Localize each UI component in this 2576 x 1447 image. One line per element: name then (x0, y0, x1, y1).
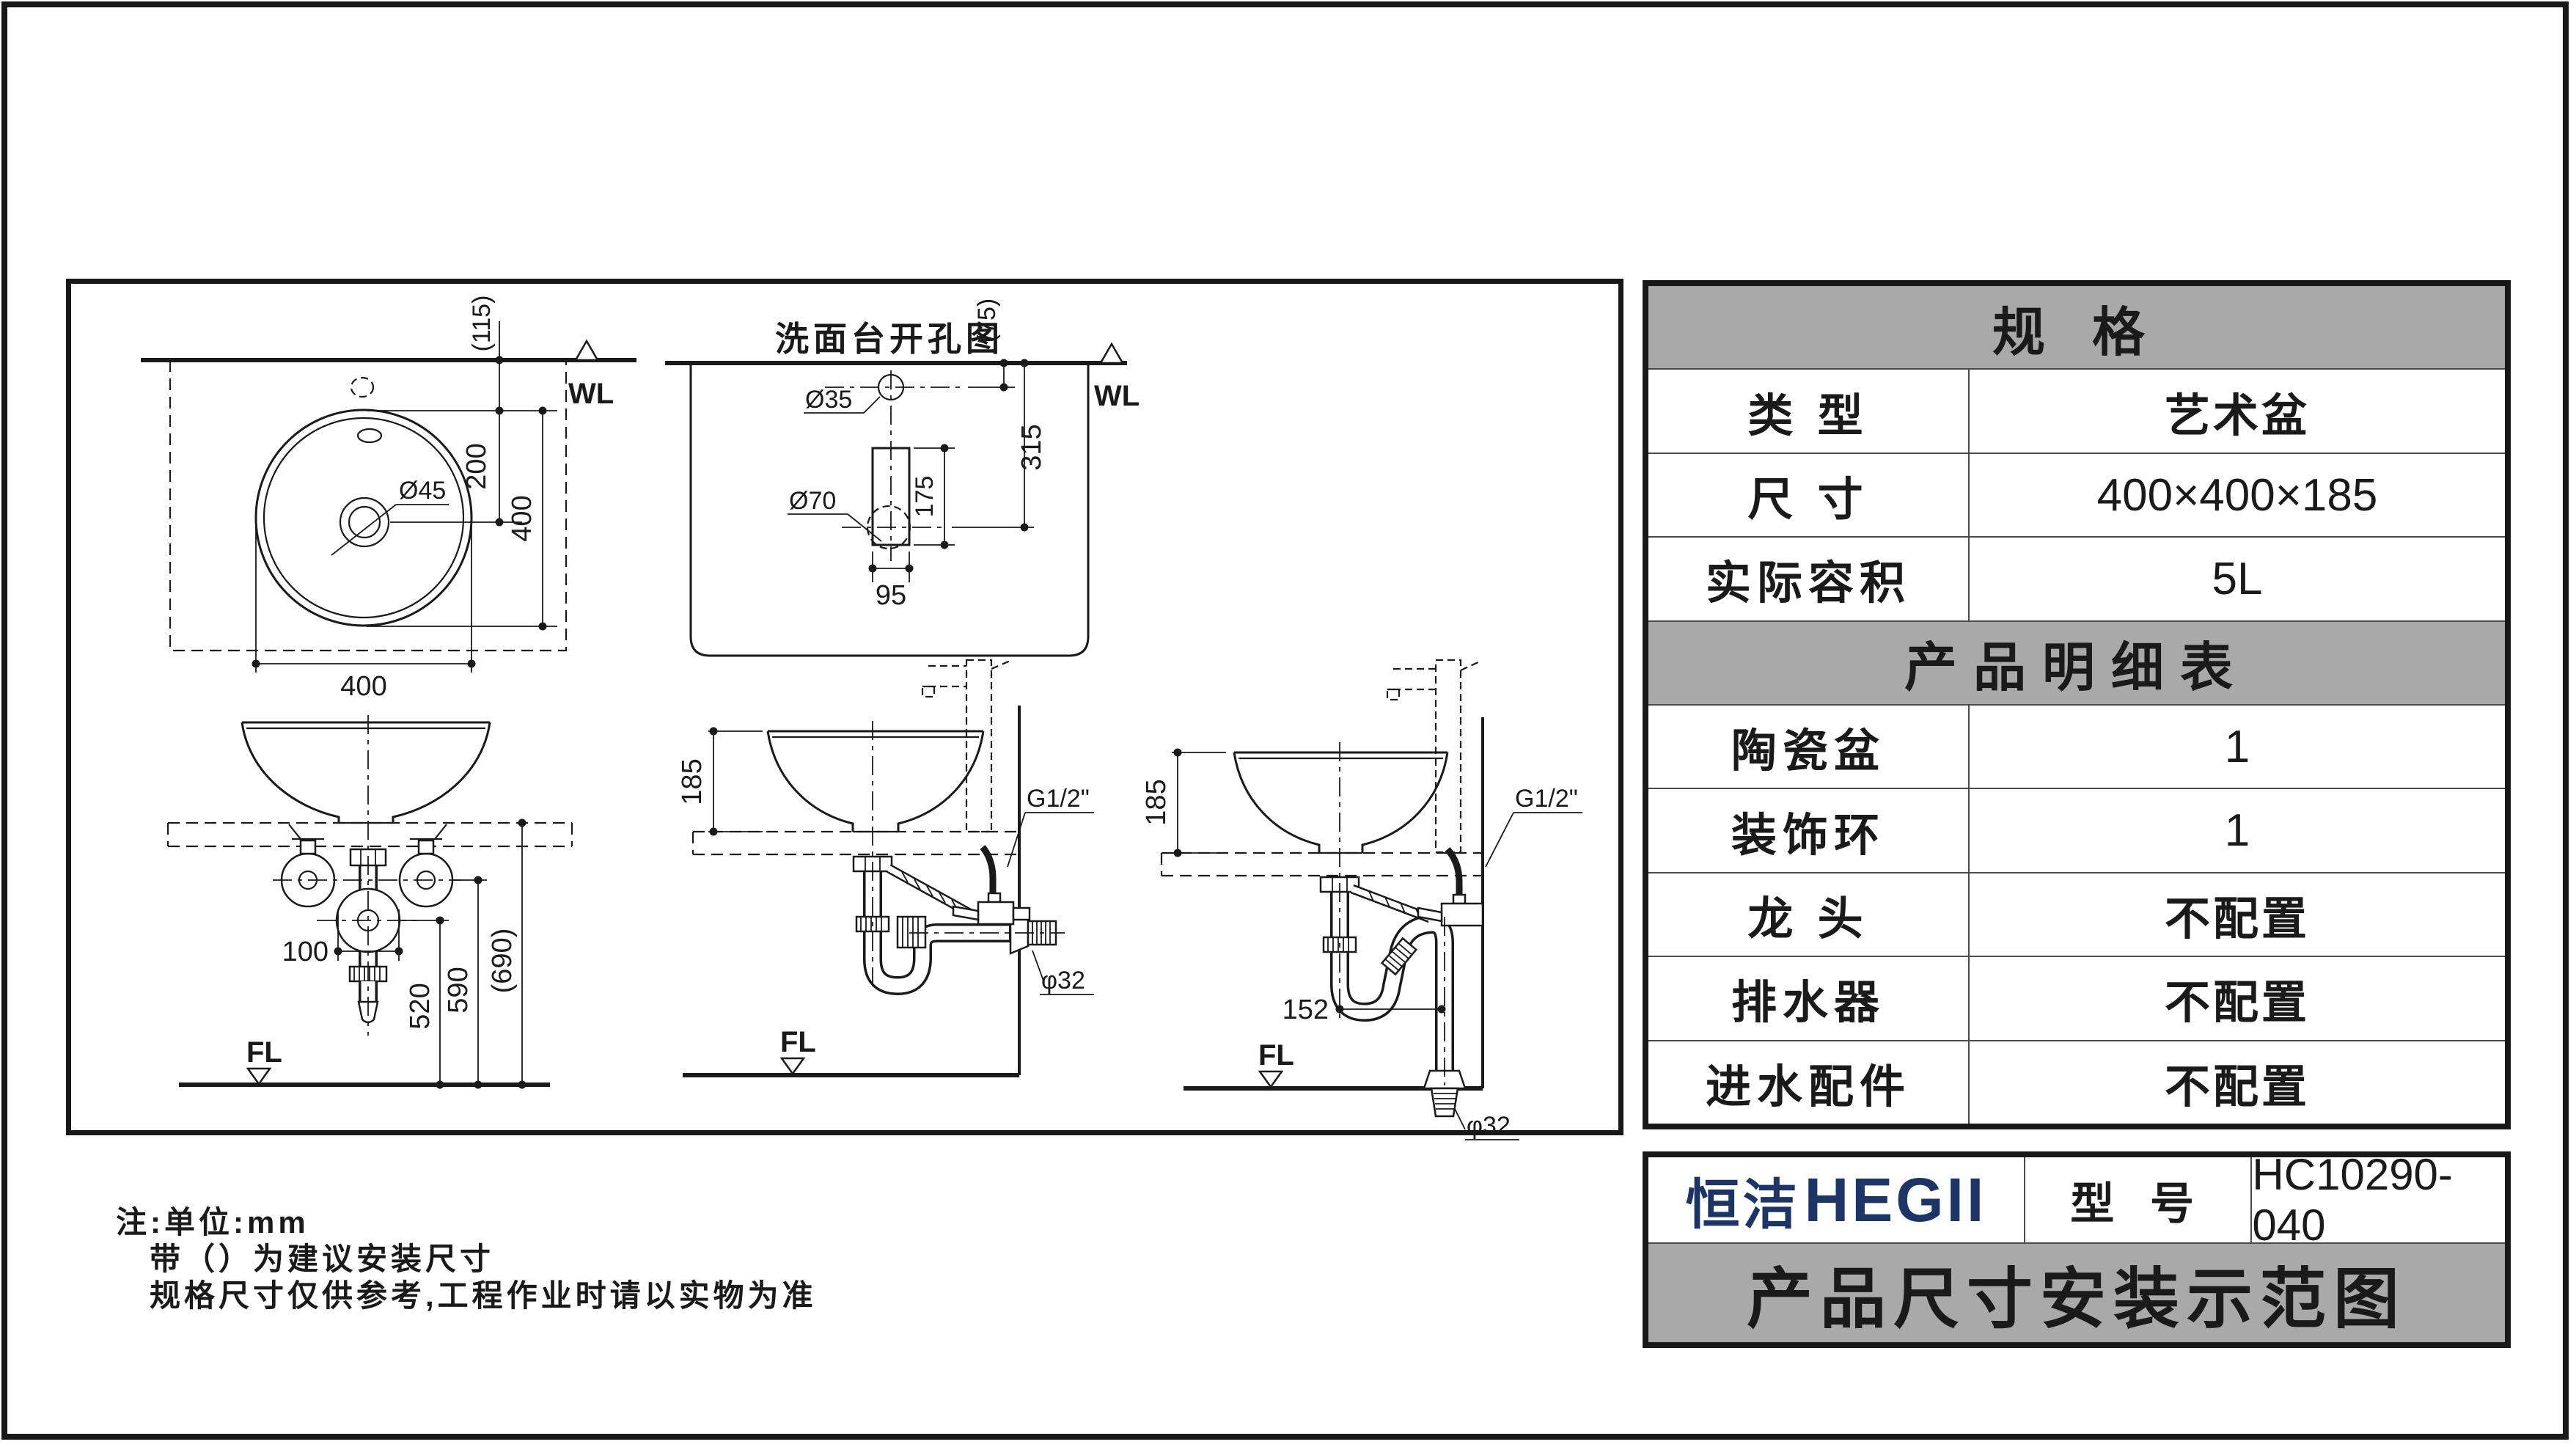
spec-header: 规 格 (1648, 286, 2505, 368)
table-row: 实际容积 5L (1648, 536, 2505, 620)
drawing-panel (66, 279, 1623, 1135)
notes-block: 注:单位:mm 带（）为建议安装尺寸 规格尺寸仅供参考,工程作业时请以实物为准 (116, 1204, 817, 1314)
row-value: 400×400×185 (1970, 454, 2505, 536)
title-block: 恒洁 HEGII 型 号 HC10290-040 产品尺寸安装示范图 (1643, 1151, 2511, 1348)
row-label: 尺 寸 (1648, 454, 1970, 536)
row-label: 陶瓷盆 (1648, 706, 1970, 788)
row-label: 实际容积 (1648, 538, 1970, 620)
row-label: 龙 头 (1648, 873, 1970, 956)
brand-logo: 恒洁 HEGII (1648, 1157, 2025, 1242)
row-value: 艺术盆 (1970, 370, 2505, 452)
table-row: 类 型 艺术盆 (1648, 368, 2505, 452)
table-row: 装饰环 1 (1648, 788, 2505, 871)
row-value: 不配置 (1970, 957, 2505, 1039)
note-line: 带（）为建议安装尺寸 (150, 1241, 817, 1278)
model-number: HC10290-040 (2252, 1157, 2505, 1242)
row-label: 装饰环 (1648, 789, 1970, 871)
table-row: 尺 寸 400×400×185 (1648, 453, 2505, 536)
sheet-title: 产品尺寸安装示范图 (1648, 1244, 2505, 1342)
detail-header: 产品明细表 (1648, 620, 2505, 704)
table-row: 陶瓷盆 1 (1648, 704, 2505, 788)
table-row: 龙 头 不配置 (1648, 872, 2505, 956)
row-label: 进水配件 (1648, 1041, 1970, 1124)
spec-table: 规 格 类 型 艺术盆 尺 寸 400×400×185 实际容积 5L 产品明细… (1643, 280, 2511, 1129)
row-label: 类 型 (1648, 370, 1970, 452)
row-value: 5L (1970, 538, 2505, 620)
table-row: 排水器 不配置 (1648, 956, 2505, 1039)
row-label: 排水器 (1648, 957, 1970, 1039)
note-line: 规格尺寸仅供参考,工程作业时请以实物为准 (150, 1278, 817, 1314)
brand-english: HEGII (1805, 1165, 1987, 1236)
model-label: 型 号 (2025, 1157, 2253, 1242)
row-value: 1 (1970, 706, 2505, 788)
table-row: 进水配件 不配置 (1648, 1040, 2505, 1124)
row-value: 1 (1970, 789, 2505, 871)
note-line: 注:单位:mm (116, 1204, 817, 1241)
row-value: 不配置 (1970, 873, 2505, 956)
row-value: 不配置 (1970, 1041, 2505, 1124)
brand-chinese: 恒洁 (1686, 1161, 1800, 1239)
